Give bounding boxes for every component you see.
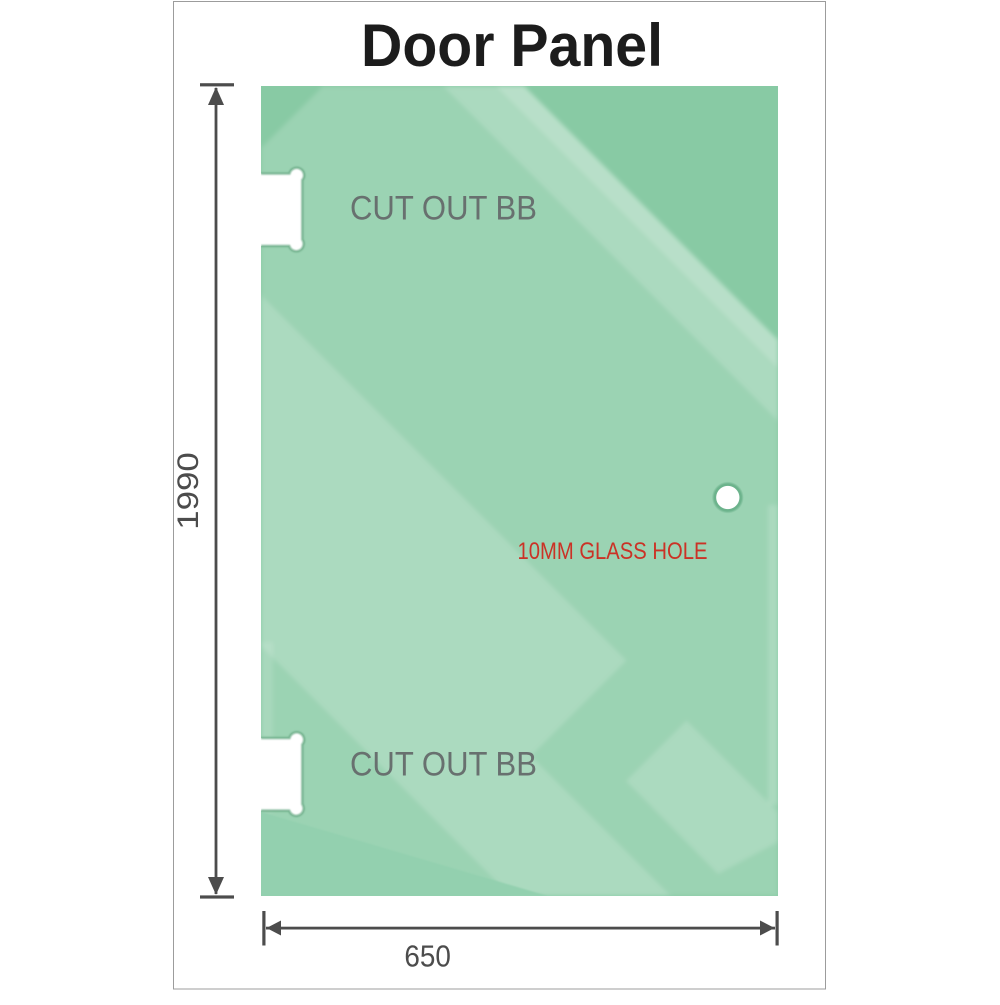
svg-text:1990: 1990 xyxy=(172,452,205,530)
svg-text:CUT OUT BB: CUT OUT BB xyxy=(350,189,537,227)
svg-text:10MM GLASS HOLE: 10MM GLASS HOLE xyxy=(518,538,708,565)
svg-text:CUT OUT BB: CUT OUT BB xyxy=(350,745,537,783)
svg-text:Door Panel: Door Panel xyxy=(361,12,663,79)
svg-text:650: 650 xyxy=(404,940,451,974)
